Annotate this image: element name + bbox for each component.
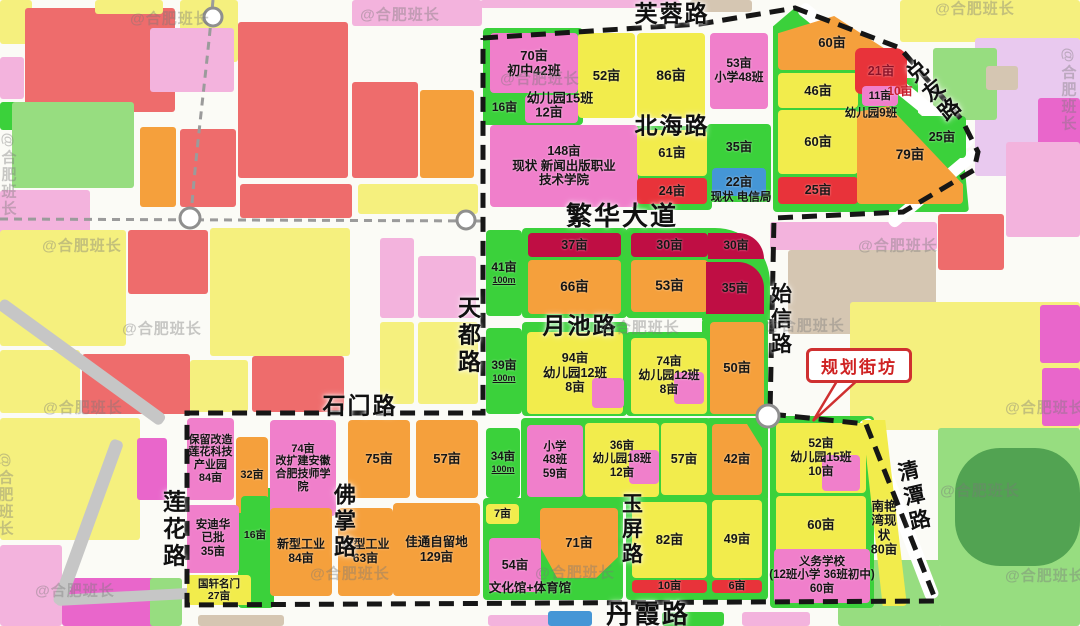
parcel-label: 86亩 (656, 67, 686, 83)
parcel-label: 32亩 (240, 469, 263, 482)
parcel: 66亩 (528, 260, 621, 314)
parcel-label: 54亩 (502, 558, 528, 573)
parcel-label: 8亩 (565, 380, 584, 395)
parcel: 佳通自留地129亩 (393, 503, 480, 596)
zone-block (1006, 142, 1080, 237)
parcel-label: 产业园 (194, 459, 227, 472)
zone-block (488, 615, 552, 626)
parcel-label: 59亩 (543, 468, 567, 481)
parcel-label: 幼儿园15班 (790, 451, 851, 465)
parcel: 35亩 (706, 262, 764, 314)
parcel-label: 53亩 (655, 278, 684, 294)
road-label: 莲花路 (161, 490, 184, 571)
road-label: 玉屏路 (621, 493, 642, 568)
parcel-label: 小学 (544, 441, 567, 454)
parcel-label: 保留改造 (189, 434, 233, 447)
parcel-label: 79亩 (896, 147, 925, 163)
parcel-label: 改扩建安徽 (276, 455, 331, 468)
zone-block (140, 127, 176, 207)
road-label: 天都路 (456, 296, 479, 377)
parcel-label: 安迪华 (196, 519, 231, 532)
parcel-label: 10亩 (808, 465, 833, 479)
watermark: @合肥班长 (600, 317, 680, 338)
parcel-label: 幼儿园18班 (593, 453, 652, 466)
zone-block (210, 228, 350, 356)
parcel-label: 25亩 (805, 183, 831, 198)
planning-map: 规划街坊 70亩初中42班16亩52亩86亩53亩小学48班60亩46亩21亩1… (0, 0, 1080, 626)
watermark: @合肥班长 (35, 580, 115, 601)
parcel-chip (592, 378, 624, 408)
watermark: @合肥班长 (500, 68, 580, 89)
parcel-label: 84亩 (199, 472, 222, 485)
parcel: 36亩幼儿园18班12亩 (585, 423, 659, 497)
parcel-label: 35亩 (722, 281, 748, 296)
parcel-label: 10亩 (658, 580, 681, 593)
parcel: 10亩 (632, 580, 707, 593)
parcel-label: 52亩 (593, 68, 620, 83)
parcel-label: 75亩 (365, 451, 392, 466)
zone-block (180, 129, 236, 207)
parcel-label: 24亩 (659, 184, 685, 199)
watermark: @合肥班长 (940, 480, 1020, 501)
zone-block (0, 418, 140, 540)
zone-block (358, 184, 478, 214)
parcel-label: 36亩 (610, 440, 634, 453)
parcel-label: 30亩 (656, 238, 682, 253)
road-label: 繁华大道 (566, 203, 678, 229)
road-label: 丹霞路 (606, 601, 690, 626)
parcel: 86亩 (637, 33, 705, 118)
parcel-label: 57亩 (433, 451, 460, 466)
parcel-label: 12亩 (610, 467, 634, 480)
parcel-label: 16亩 (244, 529, 266, 541)
parcel-label: 35亩 (201, 546, 225, 559)
parcel: 41亩100m (486, 230, 522, 316)
parcel-label: 48班 (543, 454, 567, 467)
parcel-label: 148亩 (547, 144, 580, 159)
parcel: 34亩100m (486, 428, 520, 498)
road-label: 芙蓉路 (635, 3, 710, 26)
parcel: 16亩 (241, 496, 269, 574)
parcel-label: 34亩 (491, 451, 515, 464)
zone-block (128, 230, 208, 294)
parcel-label: 莲花科技 (189, 446, 233, 459)
parcel-label: 60亩 (804, 134, 831, 149)
parcel-label: 21亩 (868, 64, 894, 79)
zone-block (955, 448, 1080, 566)
parcel: 39亩100m (486, 328, 522, 414)
watermark: @合肥班长 (1058, 48, 1079, 133)
parcel-label: 6亩 (728, 580, 745, 593)
zone-block (1040, 305, 1080, 363)
parcel-label: 27亩 (208, 590, 230, 602)
parcel-label: 74亩 (656, 355, 681, 369)
zone-block (420, 90, 474, 178)
parcel-label: 7亩 (494, 508, 511, 521)
zone-block (742, 612, 810, 626)
map-label: 南艳湾现状80亩 (871, 499, 897, 557)
parcel-label: 60亩 (807, 517, 834, 532)
parcel-label: 57亩 (671, 452, 697, 467)
watermark: @合肥班长 (43, 397, 123, 418)
watermark: @合肥班长 (360, 4, 440, 25)
parcel: 16亩 (486, 95, 523, 120)
parcel: 7亩 (486, 504, 519, 524)
parcel-label: 70亩 (520, 48, 547, 63)
zone-block (150, 578, 182, 626)
parcel-label: 幼儿园12班 (638, 369, 699, 383)
zone-block (986, 66, 1018, 90)
watermark: @合肥班长 (1005, 397, 1080, 418)
parcel-label: 37亩 (561, 238, 587, 253)
station-marker (180, 208, 200, 228)
parcel: 53亩 (631, 260, 708, 312)
watermark: @合肥班长 (1005, 565, 1080, 586)
parcel-label: 16亩 (492, 101, 517, 115)
road-label: 石门路 (323, 395, 398, 418)
parcel-label: 100m (491, 464, 514, 474)
zone-block (150, 28, 234, 92)
parcel-label: 61亩 (658, 145, 685, 160)
zone-block (240, 184, 352, 218)
parcel-label: 佳通自留地 (405, 535, 468, 550)
parcel-label: 100m (492, 275, 515, 285)
parcel-label: 41亩 (491, 261, 516, 275)
callout: 规划街坊 (806, 348, 912, 383)
parcel-label: 49亩 (724, 532, 750, 547)
parcel: 75亩 (348, 420, 410, 498)
parcel-label: 国轩名门 (198, 578, 240, 590)
parcel-label: 30亩 (723, 239, 748, 253)
parcel-label: 46亩 (804, 83, 831, 98)
parcel: 30亩 (708, 233, 764, 259)
parcel-label: 53亩 (726, 57, 751, 71)
parcel: 74亩改扩建安徽合肥技师学院 (270, 420, 336, 516)
watermark: @合肥班长 (0, 453, 16, 538)
watermark: @合肥班长 (935, 0, 1015, 19)
parcel-label: 新型工业 (277, 538, 325, 552)
parcel-label: 35亩 (726, 140, 752, 155)
parcel: 57亩 (416, 420, 478, 498)
watermark: @合肥班长 (535, 562, 615, 583)
parcel: 46亩 (778, 73, 858, 108)
parcel-label: 小学48班 (714, 71, 763, 85)
parcel-label: 94亩 (562, 351, 588, 366)
parcel: 国轩名门27亩 (187, 575, 251, 605)
zone-block (238, 22, 348, 178)
road-label: 佛掌路 (332, 483, 354, 561)
parcel-label: 合肥技师学 (276, 468, 331, 481)
parcel-label: 已批 (202, 532, 225, 545)
zone-block (938, 214, 1004, 270)
parcel-label: 50亩 (723, 360, 750, 375)
zone-block (352, 82, 418, 178)
parcel: 义务学校(12班小学 36班初中)60亩 (774, 549, 870, 603)
parcel-label: 22亩 (726, 175, 752, 190)
parcel: 82亩 (632, 502, 707, 578)
parcel-label: 幼儿园12班 (543, 366, 607, 381)
map-label: 现状 电信局 (711, 191, 772, 204)
parcel-label: 院 (298, 481, 309, 494)
map-label: 10亩 (887, 85, 912, 99)
parcel: 6亩 (712, 580, 762, 593)
parcel: 49亩 (712, 500, 762, 578)
map-label: 12亩 (535, 106, 562, 121)
parcel-label: 现状 新闻出版职业 (512, 159, 615, 174)
road-label: 北海路 (635, 115, 710, 138)
zone-block (190, 360, 248, 412)
zone-block (198, 615, 284, 626)
watermark: @合肥班长 (42, 235, 122, 256)
parcel-label: 66亩 (560, 279, 589, 295)
parcel: 30亩 (631, 233, 708, 257)
parcel-label: (12班小学 36班初中) (769, 569, 874, 582)
parcel: 60亩 (776, 496, 866, 554)
zone-block (0, 57, 24, 99)
parcel-label: 71亩 (565, 535, 592, 550)
parcel: 25亩 (778, 177, 858, 204)
parcel-label: 100m (492, 373, 515, 383)
parcel: 50亩 (710, 322, 764, 414)
parcel: 53亩小学48班 (710, 33, 768, 109)
watermark: @合肥班长 (130, 8, 210, 29)
parcel: 35亩 (712, 128, 766, 166)
parcel: 保留改造莲花科技产业园84亩 (187, 418, 234, 500)
map-label: 文化馆+体育馆 (489, 581, 571, 595)
zone-block (380, 238, 414, 318)
parcel-label: 39亩 (491, 359, 516, 373)
watermark: @合肥班长 (0, 133, 19, 218)
parcel-label: 60亩 (810, 583, 834, 596)
callout-label: 规划街坊 (821, 353, 897, 378)
parcel: 小学48班59亩 (527, 425, 583, 497)
map-label: 幼儿园9班 (845, 107, 897, 120)
parcel-label: 技术学院 (539, 173, 589, 188)
zone-block (12, 102, 134, 188)
parcel-label: 74亩 (291, 443, 314, 456)
parcel: 安迪华已批35亩 (187, 505, 239, 573)
parcel: 57亩 (661, 423, 707, 495)
parcel-label: 42亩 (724, 452, 750, 467)
parcel-label: 82亩 (656, 532, 683, 547)
parcel-label: 8亩 (660, 383, 679, 397)
zone-block (548, 611, 592, 626)
parcel: 37亩 (528, 233, 621, 257)
parcel: 148亩现状 新闻出版职业技术学院 (490, 125, 638, 207)
watermark: @合肥班长 (310, 563, 390, 584)
watermark: @合肥班长 (858, 235, 938, 256)
parcel-label: 60亩 (818, 35, 845, 50)
parcel-label: 129亩 (420, 550, 453, 565)
parcel-label: 义务学校 (799, 556, 845, 569)
parcel-label: 25亩 (929, 130, 955, 145)
watermark: @合肥班长 (765, 315, 845, 336)
watermark: @合肥班长 (122, 318, 202, 339)
parcel-label: 52亩 (808, 437, 833, 451)
